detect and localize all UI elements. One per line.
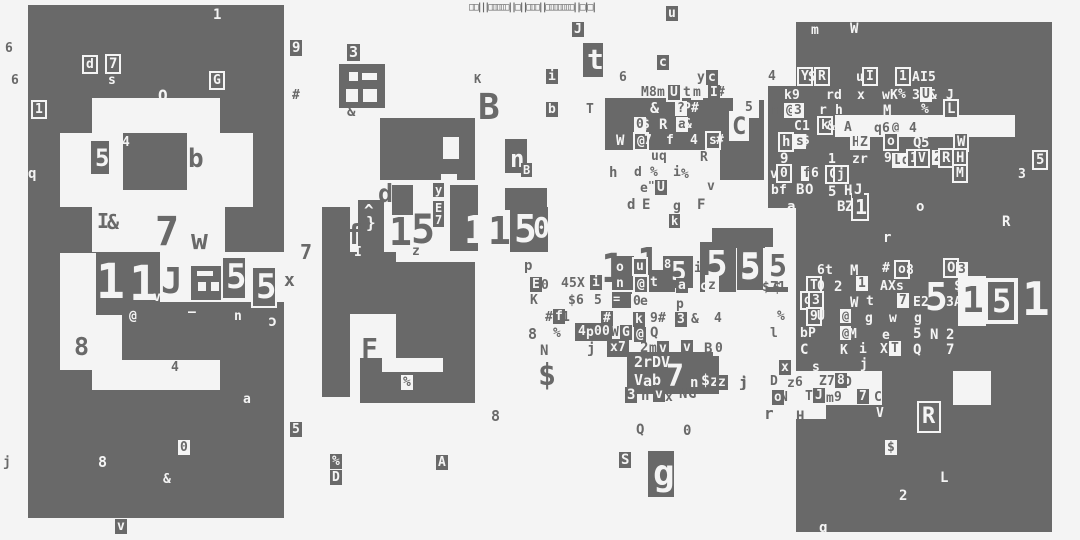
glyph: O — [805, 183, 813, 197]
glyph: U — [668, 85, 680, 100]
glyph: 4 — [561, 277, 569, 290]
glyph: 0 — [683, 424, 691, 438]
glyph: N — [540, 344, 548, 358]
glyph: i — [673, 166, 681, 179]
glyph: X — [577, 277, 585, 290]
glyph: 9 — [650, 312, 658, 325]
glyph: x — [610, 341, 618, 354]
glyph: U — [655, 180, 667, 195]
glyph: 8 — [528, 327, 537, 342]
glyph: % — [553, 327, 561, 340]
glyph: 0 — [778, 166, 790, 181]
glyph: Q — [650, 326, 658, 340]
glyph: 3 — [347, 44, 360, 61]
glyph: A — [880, 280, 888, 293]
glyph: N — [780, 391, 788, 404]
glyph: % — [921, 103, 929, 116]
glyph: s — [896, 280, 904, 293]
glyph: z — [716, 375, 728, 390]
glyph: # — [292, 89, 300, 102]
glyph: K — [890, 89, 898, 102]
glyph: 8 — [98, 455, 107, 470]
light-cutout — [349, 72, 358, 81]
light-cutout — [953, 371, 991, 405]
glyph: w — [889, 312, 897, 325]
glyph: 7 — [770, 281, 778, 294]
glyph: U — [817, 310, 825, 323]
glyph: n — [616, 277, 624, 290]
glyph: 1 — [856, 276, 868, 291]
glyph: o — [916, 200, 924, 214]
light-cutout — [443, 137, 459, 159]
glyph: 4 — [768, 70, 776, 83]
glyph: Q — [636, 423, 644, 437]
gray-block — [350, 252, 396, 314]
glyph: L — [940, 471, 948, 485]
glyph: w — [882, 89, 890, 102]
glyph: 4 — [578, 325, 586, 338]
glyph: 8 — [906, 264, 914, 277]
glyph: 1 — [96, 258, 125, 306]
glyph: W — [616, 134, 624, 148]
glyph: # — [882, 262, 890, 275]
glyph: 1 — [855, 197, 867, 217]
glyph: g — [653, 456, 675, 492]
glyph: j — [3, 456, 11, 469]
glyph: T — [805, 390, 813, 403]
glyph: J — [161, 264, 183, 300]
glyph: 3 — [810, 293, 822, 308]
glyph: m — [826, 392, 834, 405]
glyph: s — [812, 361, 820, 374]
glyph: $ — [802, 134, 810, 147]
light-cutout — [441, 174, 457, 183]
glyph: 7 — [946, 343, 954, 357]
glyph: h — [780, 134, 792, 150]
glyph: J — [572, 22, 584, 37]
glyph: & — [929, 89, 937, 102]
glyph: A — [844, 121, 852, 134]
glyph: M — [883, 104, 891, 118]
glyph: W — [850, 22, 858, 36]
glyph: k — [669, 214, 680, 228]
glyph: 1 — [962, 283, 984, 319]
glyph: z — [708, 279, 716, 292]
glyph: f — [666, 134, 674, 147]
glyph: b — [188, 146, 204, 172]
glyph: c — [706, 70, 718, 85]
glyph: T — [889, 341, 901, 356]
glyph: V — [916, 151, 928, 166]
glyph: Q — [913, 343, 921, 357]
light-cutout — [198, 282, 206, 291]
glyph: m — [691, 85, 703, 100]
glyph: t — [825, 264, 833, 277]
glyph: d — [834, 89, 842, 102]
glyph: A — [436, 455, 448, 470]
glyph: 3 — [792, 103, 804, 118]
glyph: s — [108, 74, 116, 87]
glyph: " — [648, 180, 655, 191]
glyph: 5 — [740, 249, 760, 283]
light-cutout — [92, 360, 220, 390]
glyph: 1 — [828, 153, 836, 166]
glyph: 0 — [817, 280, 825, 293]
glyph: B — [704, 342, 712, 356]
glyph: o — [616, 261, 624, 274]
glyph: b — [771, 184, 779, 197]
glyph: p — [524, 259, 532, 273]
glyph: Z — [845, 200, 853, 214]
glyph: i — [546, 69, 558, 84]
glyph: M — [641, 86, 649, 99]
glyph: P — [683, 102, 691, 115]
glyph: 5 — [569, 277, 577, 290]
glyph: h — [609, 166, 617, 180]
glyph: % — [898, 88, 906, 101]
glyph: % — [650, 166, 658, 179]
glyph: R — [940, 150, 952, 166]
glyph: A — [172, 114, 183, 132]
glyph: 5 — [745, 101, 753, 114]
glyph: N — [679, 387, 687, 401]
glyph: 1 — [464, 211, 487, 249]
glyph: X — [888, 280, 896, 293]
light-cutout — [92, 98, 220, 133]
glyph: 3 — [1018, 168, 1026, 181]
glyph: & — [827, 120, 835, 133]
glyph: r — [819, 104, 827, 117]
glyph: p — [586, 326, 594, 339]
glyph: r — [643, 355, 652, 370]
glyph: V — [874, 406, 886, 421]
glyph: 2 — [634, 355, 643, 370]
glyph: 7 — [107, 56, 119, 72]
glyph: 4 — [122, 136, 130, 149]
glyph: — — [188, 306, 196, 319]
glyph: a — [643, 374, 652, 389]
glyph: & — [684, 118, 692, 131]
light-cutout — [60, 253, 96, 315]
glyph: Z — [819, 375, 827, 388]
light-cutout — [382, 358, 443, 372]
glyph: u — [666, 6, 678, 21]
light-cutout — [835, 115, 1015, 137]
glyph: S — [808, 71, 816, 84]
glyph: g — [865, 312, 873, 325]
glyph: j — [587, 342, 595, 356]
glyph: F — [697, 198, 705, 212]
glyph: C — [800, 343, 808, 357]
glyph: 7 — [300, 242, 312, 262]
glyph: 9 — [780, 152, 788, 166]
glyph: a — [243, 393, 251, 406]
glyph: 3 — [946, 296, 954, 309]
glyph: w — [191, 226, 208, 254]
glyph: N — [930, 328, 938, 342]
glyph: 1 — [488, 212, 511, 250]
glyph: a — [676, 278, 688, 293]
glyph: 5 — [921, 136, 929, 150]
glyph: 0 — [602, 325, 610, 338]
binary-box-line: □□|||□□□□□||□||□□□||□□□□□□□||□|□| — [469, 3, 595, 13]
glyph: H — [954, 150, 966, 166]
glyph: 2 — [834, 280, 842, 294]
glyph: K — [474, 73, 481, 85]
glyph: z — [787, 377, 795, 390]
glyph: u — [856, 71, 864, 84]
glyph: e — [640, 295, 648, 308]
glyph: 4 — [714, 312, 722, 325]
glyph: g — [673, 200, 681, 213]
glyph: 6 — [809, 166, 821, 181]
glyph: n — [771, 104, 779, 117]
glyph: 6 — [795, 376, 803, 389]
glyph: R — [659, 118, 667, 132]
light-cutout — [197, 271, 213, 276]
glyph: I — [864, 69, 876, 84]
glyph: 8 — [74, 334, 89, 359]
glyph: d — [84, 57, 96, 72]
glyph: I — [920, 71, 928, 84]
glyph: % — [330, 454, 342, 469]
glyph: Z — [858, 135, 870, 150]
glyph: n — [234, 310, 242, 323]
glyph: 2 — [899, 489, 907, 503]
glyph: 2 — [946, 328, 954, 342]
glyph: 6 — [576, 294, 584, 307]
glyph: A — [912, 71, 920, 84]
glyph: v — [707, 180, 715, 193]
glyph: W — [850, 296, 858, 310]
glyph: t — [683, 86, 691, 99]
glyph: R — [922, 406, 935, 428]
glyph: t — [587, 46, 604, 74]
glyph: T — [586, 103, 594, 116]
glyph: % — [777, 310, 785, 323]
light-cutout — [363, 89, 377, 102]
glyph: 5 — [290, 422, 302, 437]
glyph: 9 — [792, 89, 800, 102]
glyph: 6 — [619, 71, 627, 84]
glyph: 0 — [533, 214, 550, 242]
glyph: W — [955, 134, 967, 150]
glyph: e — [640, 182, 648, 195]
glyph: 6 — [11, 74, 19, 87]
glyph: X — [880, 343, 888, 356]
glyph: $ — [762, 281, 770, 294]
glyph: t — [866, 295, 874, 308]
glyph: x — [857, 89, 865, 102]
glyph: b — [546, 102, 558, 117]
glyph: # — [716, 134, 724, 147]
glyph: $ — [642, 118, 650, 131]
glyph: l — [770, 327, 778, 340]
glyph: 1 — [389, 213, 412, 251]
glyph: w — [622, 296, 629, 307]
glyph: 1 — [213, 8, 221, 22]
glyph: 3 — [675, 312, 687, 327]
glyph: R — [816, 69, 828, 84]
glyph: k — [784, 89, 792, 102]
glyph: 5 — [226, 260, 246, 294]
glyph: $ — [701, 373, 710, 388]
glyph: 3 — [956, 262, 968, 277]
glyph: R — [1002, 215, 1010, 229]
glyph: q — [659, 150, 667, 163]
glyph: z — [412, 245, 420, 258]
glyph: 6 — [817, 264, 825, 277]
glyph: & — [691, 313, 699, 326]
glyph: t — [650, 276, 658, 289]
gray-block — [380, 118, 475, 180]
glyph: 7 — [644, 134, 652, 147]
glyph: d — [634, 166, 642, 179]
glyph: E — [913, 296, 921, 309]
glyph: r — [764, 406, 774, 422]
glyph: C — [794, 120, 802, 133]
glyph: J — [813, 388, 825, 403]
glyph: c — [657, 55, 669, 70]
glyph: 5 — [928, 71, 936, 84]
glyph: v — [770, 168, 778, 181]
glyph: j — [835, 167, 847, 182]
glyph: 0 — [713, 341, 725, 356]
glyph: P — [808, 327, 816, 340]
glyph: u — [634, 259, 646, 274]
glyph: @ — [890, 120, 901, 134]
glyph: o — [885, 134, 897, 149]
glyph: v — [653, 387, 665, 402]
glyph: E — [642, 198, 650, 212]
glyph: 5 — [828, 185, 836, 199]
glyph: @ — [129, 310, 137, 323]
glyph: 7 — [897, 293, 909, 308]
glyph: 5 — [769, 252, 787, 282]
glyph: D — [844, 376, 852, 389]
glyph: 0 — [594, 325, 602, 338]
glyph: K — [530, 294, 538, 307]
glyph: 7 — [857, 389, 869, 404]
glyph: x — [284, 272, 295, 290]
light-cutout — [211, 282, 219, 291]
glyph: # — [717, 86, 725, 99]
glyph: = — [613, 293, 620, 305]
glyph: h — [641, 389, 649, 403]
glyph: 9 — [834, 391, 842, 404]
glyph: d — [627, 198, 635, 212]
glyph: x — [779, 360, 791, 375]
glyph: q — [28, 167, 36, 181]
glyph: 5 — [594, 294, 602, 307]
glyph: 1 — [778, 281, 786, 294]
glyph: } — [366, 215, 376, 231]
glyph: % — [401, 375, 413, 390]
glyph: W — [611, 326, 619, 339]
glyph: p — [676, 298, 684, 311]
glyph: u — [651, 150, 659, 163]
glyph: m — [657, 86, 665, 99]
glyph: V — [634, 373, 643, 388]
glyph: 7 — [155, 212, 179, 252]
glyph: 5 — [95, 146, 109, 170]
glyph: & — [347, 105, 355, 119]
glyph: Q — [158, 88, 168, 104]
glyph: # — [658, 312, 666, 325]
glyph: k — [633, 312, 645, 327]
glyph: 0 — [178, 440, 190, 455]
glyph: 0 — [541, 279, 549, 292]
glyph: v — [681, 340, 693, 355]
glyph: L — [945, 101, 957, 117]
glyph: G — [688, 387, 696, 401]
glyph: 4 — [690, 134, 698, 147]
glyph: D — [770, 375, 778, 388]
light-cutout — [362, 73, 377, 80]
glyph: f — [779, 184, 787, 197]
glitch-canvas: □□|||□□□□□||□||□□□||□□□□□□□||□|□| uJtci6… — [0, 0, 1080, 540]
glyph: i — [694, 262, 702, 275]
glyph: y — [433, 183, 444, 197]
glyph: z — [852, 153, 860, 166]
glyph: r — [826, 89, 834, 102]
glyph: 7 — [618, 341, 626, 354]
glyph: 9 — [290, 40, 302, 56]
glyph: a — [787, 200, 795, 214]
glyph: @ — [840, 309, 851, 323]
glyph: b — [800, 327, 808, 340]
glyph: # — [545, 311, 553, 324]
glyph: j — [860, 358, 868, 371]
glyph: 3 — [625, 387, 637, 403]
glyph: ɔ — [268, 314, 277, 329]
glyph: y — [697, 71, 705, 84]
glyph: @ — [114, 120, 122, 133]
glyph: i — [859, 343, 867, 356]
glyph: & — [163, 473, 171, 486]
glyph: 1 — [1022, 276, 1050, 322]
glyph: 1 — [802, 120, 810, 133]
glyph: 7 — [827, 375, 835, 388]
glyph: F — [361, 335, 378, 363]
glyph: B — [478, 90, 500, 126]
glyph: D — [652, 355, 661, 370]
glyph: A — [954, 296, 962, 309]
glyph: I — [354, 246, 362, 259]
glyph: C — [732, 114, 746, 138]
glyph: g — [819, 521, 827, 535]
glyph: B — [796, 183, 804, 197]
glyph: K — [840, 344, 848, 357]
glyph: 4 — [909, 122, 917, 135]
glyph: 8 — [491, 409, 500, 424]
glyph: & — [107, 212, 119, 232]
glyph: g — [914, 312, 922, 325]
glyph: 4 — [171, 361, 179, 374]
glyph: 5 — [992, 285, 1011, 317]
glyph: $ — [885, 440, 897, 455]
glyph: 1 — [897, 69, 909, 84]
glyph: x — [665, 391, 673, 404]
glyph: X — [785, 295, 793, 309]
glyph: G — [211, 73, 223, 88]
glyph: c — [700, 280, 708, 293]
glyph: M — [849, 328, 857, 341]
glyph: d — [378, 181, 393, 206]
glyph: R — [700, 151, 708, 164]
gray-block — [445, 262, 475, 360]
glyph: & — [650, 101, 659, 116]
